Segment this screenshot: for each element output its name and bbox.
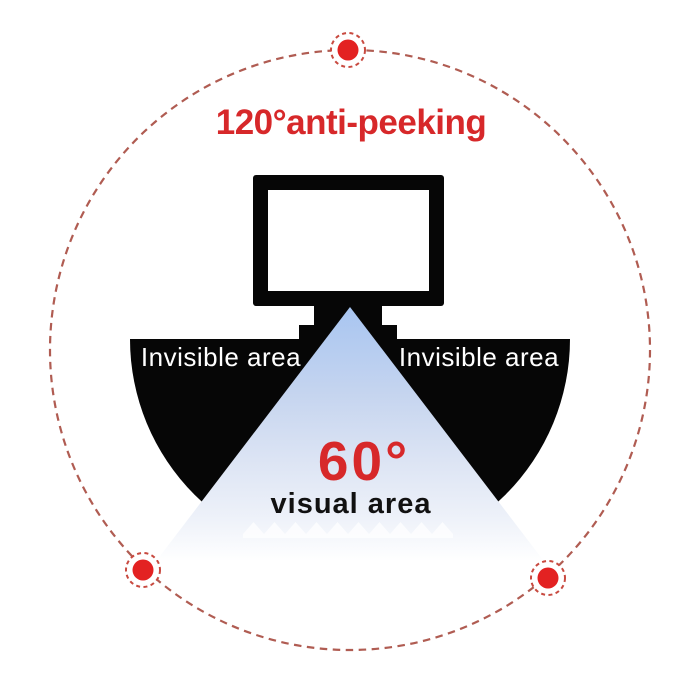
anti-peeking-infographic: 120°anti-peeking Invisible area Invisibl… [0, 0, 700, 700]
visual-angle-label: 60° [318, 430, 410, 492]
orbit-dot-bottom-right-core [538, 568, 559, 589]
visual-area-label: visual area [271, 488, 432, 520]
diagram-canvas: 120°anti-peeking Invisible area Invisibl… [0, 0, 700, 700]
invisible-area-label-left: Invisible area [141, 342, 301, 372]
orbit-dot-top [331, 33, 365, 67]
orbit-dot-bottom-right [531, 561, 565, 595]
orbit-dot-bottom-left [126, 553, 160, 587]
anti-peeking-title: 120°anti-peeking [216, 103, 487, 142]
invisible-area-label-right: Invisible area [399, 342, 559, 372]
orbit-dot-bottom-left-core [133, 560, 154, 581]
monitor-screen [268, 190, 429, 291]
orbit-dot-top-core [338, 40, 359, 61]
